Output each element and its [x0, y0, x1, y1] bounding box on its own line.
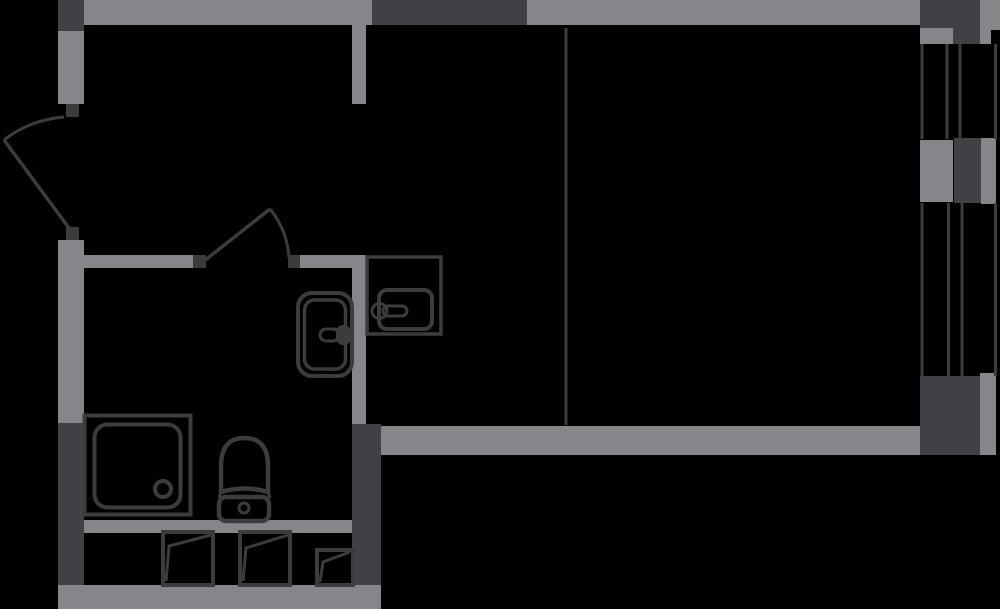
window-line [946, 44, 949, 139]
fixtures-layer [85, 257, 442, 521]
shower-tray [85, 416, 191, 515]
divider-wall-stub [352, 25, 366, 104]
floor-plan-canvas [0, 0, 1000, 609]
sash-panel-3-part [320, 552, 350, 582]
living-bottom-wall [381, 426, 920, 455]
toilet [219, 438, 270, 521]
right-outer-notch [991, 30, 1000, 44]
window-line [994, 203, 997, 376]
bathroom-door-swing-arc [270, 209, 289, 258]
kitchen-sink [367, 257, 441, 334]
right-column-top-inner [920, 0, 953, 28]
toilet-part [221, 438, 268, 492]
entry-door-jamb-bottom [66, 227, 79, 240]
window-sill-top [920, 28, 953, 44]
columns-layer [58, 0, 981, 585]
bath-corner-column [352, 424, 381, 585]
window-pillar-sill [920, 140, 953, 202]
corner-column-topleft [58, 0, 84, 31]
toilet-part [239, 503, 249, 513]
shower-tray-part [155, 481, 171, 497]
left-wall-middle [58, 240, 84, 423]
partition-layer [565, 28, 568, 425]
right-column-top-outer [953, 0, 980, 44]
window-line [921, 203, 924, 376]
kitchen-partition-line [565, 28, 568, 425]
window-line [947, 203, 950, 376]
notches-layer [991, 30, 1000, 44]
top-wall-dark-section [372, 0, 527, 25]
panels-layer [163, 532, 353, 585]
right-outer-wall-mid [981, 138, 996, 204]
sash-panel-2-part [240, 532, 290, 585]
sash-panel-3 [317, 550, 353, 585]
window-line [959, 44, 962, 139]
sash-panel-1 [163, 532, 213, 585]
shower-tray-part [85, 416, 191, 515]
floor-plan [0, 0, 1000, 609]
bottom-exterior-wall [58, 585, 381, 609]
divider-wall [352, 255, 366, 425]
bathroom-door [204, 209, 289, 261]
walls-layer [58, 0, 1000, 609]
entry-door-swing-arc [4, 117, 64, 140]
entry-door-jamb-top [66, 104, 79, 117]
right-outer-wall-bottom [980, 373, 996, 455]
bathroom-door-leaf [204, 209, 270, 261]
window-line [921, 44, 924, 139]
bath-door-jamb-left [193, 255, 206, 268]
right-column-mid [954, 138, 981, 203]
left-wall-upper [58, 31, 84, 104]
window-line [961, 203, 964, 376]
door-jambs-layer [66, 104, 300, 268]
sash-panel-2-part [243, 535, 288, 581]
windows-layer [921, 44, 998, 376]
entry-door [4, 117, 69, 228]
window-line [994, 44, 997, 139]
entry-door-leaf [4, 140, 69, 228]
sash-panel-2 [240, 532, 290, 585]
left-column-bottom [58, 423, 84, 585]
bath-bottom-wall [84, 520, 352, 533]
sash-panel-1-part [166, 535, 211, 581]
washbasin [298, 293, 352, 376]
doors-layer [4, 117, 289, 261]
right-column-bottom [920, 376, 980, 455]
bath-top-wall-left [84, 255, 193, 268]
toilet-part [219, 497, 269, 521]
